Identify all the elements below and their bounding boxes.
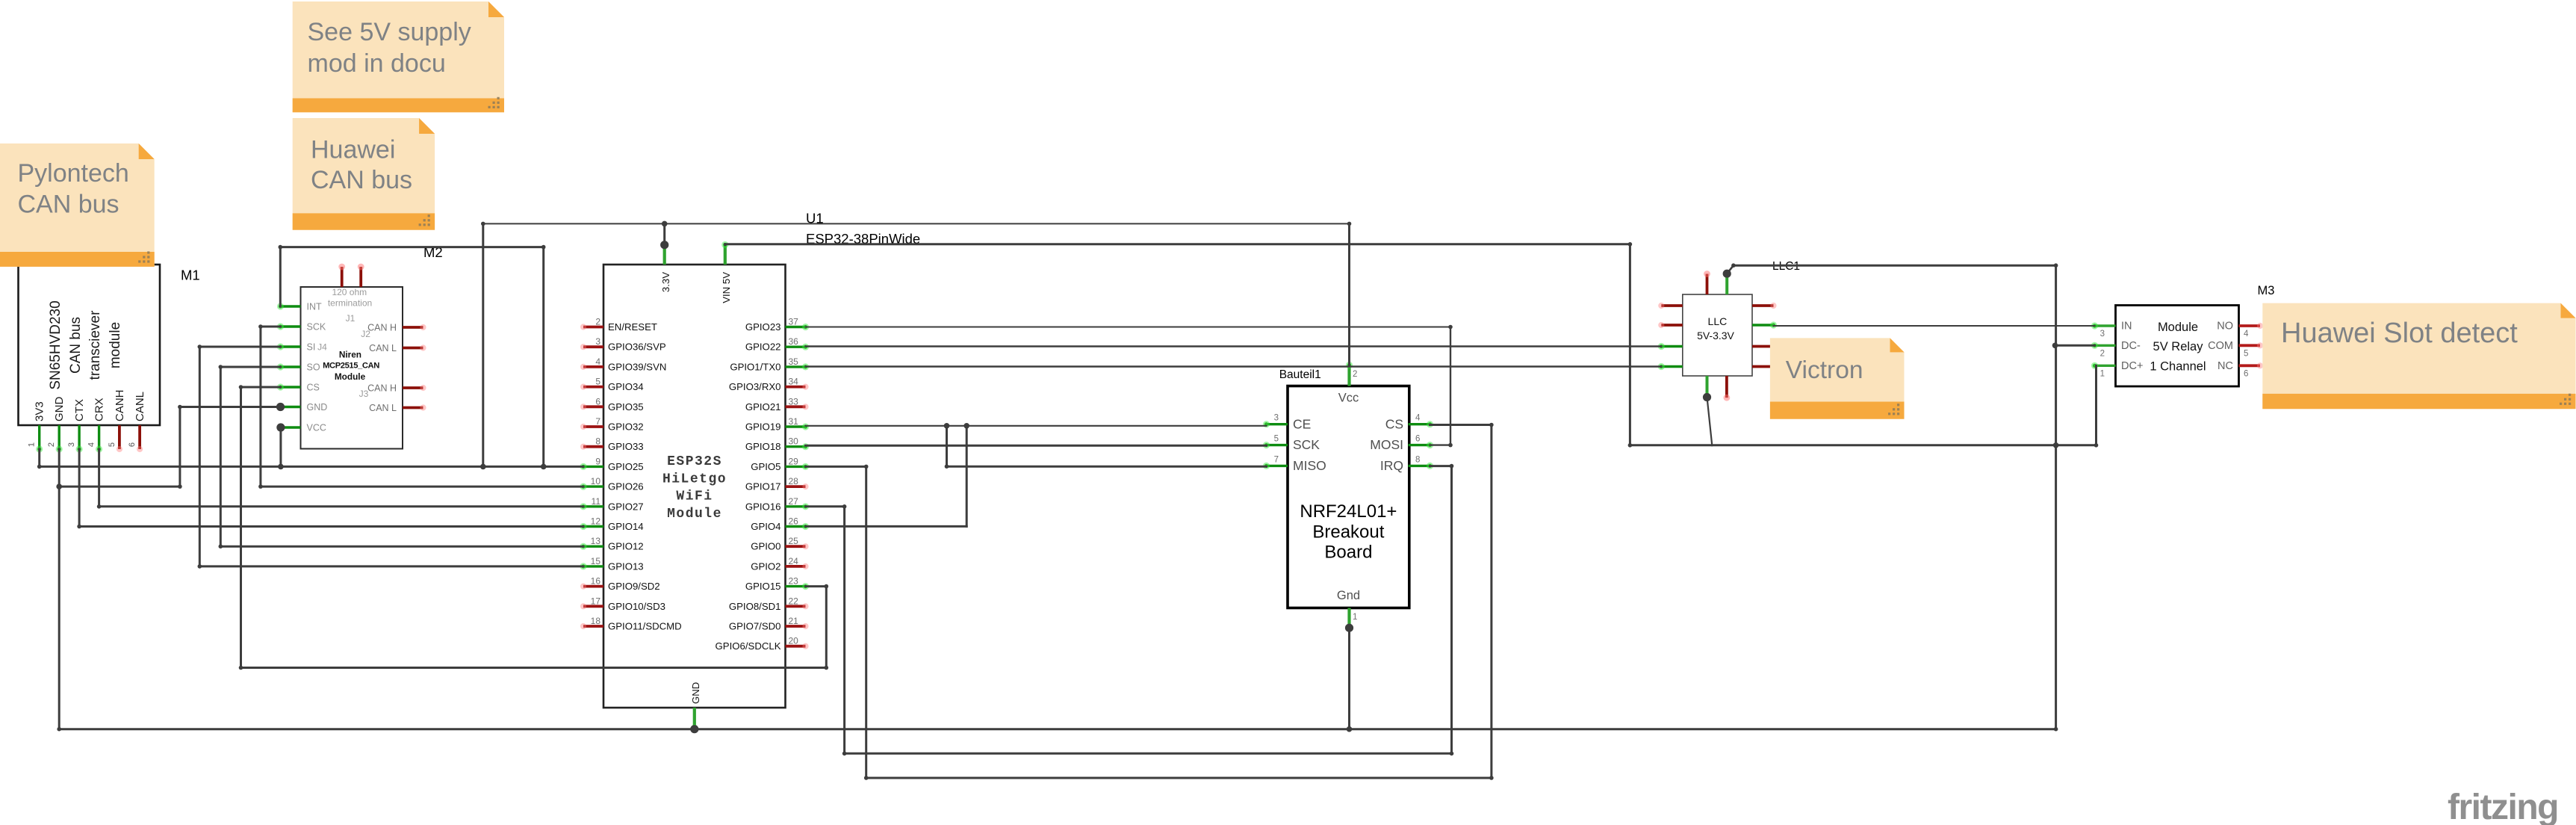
svg-text:Vcc: Vcc	[1338, 392, 1359, 405]
svg-text:MOSI: MOSI	[1370, 437, 1403, 452]
svg-text:GPIO25: GPIO25	[608, 461, 644, 472]
svg-text:NRF24L01+: NRF24L01+	[1300, 501, 1397, 522]
svg-text:CAN bus: CAN bus	[18, 191, 120, 219]
svg-text:3: 3	[595, 336, 600, 347]
svg-text:21: 21	[789, 616, 799, 626]
svg-text:12: 12	[591, 516, 601, 527]
svg-text:VIN 5V: VIN 5V	[721, 272, 732, 303]
svg-text:GPIO19: GPIO19	[745, 421, 781, 433]
svg-text:8: 8	[595, 436, 600, 447]
svg-text:COM: COM	[2208, 340, 2233, 352]
svg-text:GPIO34: GPIO34	[608, 381, 644, 392]
svg-text:GPIO26: GPIO26	[608, 481, 644, 492]
svg-text:1: 1	[1353, 613, 1357, 622]
svg-text:CANH: CANH	[114, 389, 126, 421]
svg-text:20: 20	[789, 636, 799, 646]
svg-text:4: 4	[2244, 330, 2249, 339]
svg-text:5V Relay: 5V Relay	[2153, 340, 2204, 353]
svg-text:Module: Module	[335, 371, 366, 382]
svg-text:SCK: SCK	[1293, 437, 1320, 452]
svg-text:18: 18	[591, 616, 601, 626]
svg-text:10: 10	[591, 476, 601, 486]
svg-text:6: 6	[1415, 435, 1420, 444]
svg-text:SI: SI	[307, 342, 316, 353]
svg-text:DC+: DC+	[2121, 360, 2143, 372]
svg-text:J1: J1	[346, 313, 356, 324]
svg-text:CAN H: CAN H	[367, 383, 397, 394]
svg-text:4: 4	[87, 442, 96, 447]
svg-text:SN65HVD230: SN65HVD230	[48, 300, 63, 389]
svg-text:23: 23	[789, 576, 799, 587]
svg-text:GPIO7/SD0: GPIO7/SD0	[729, 621, 781, 632]
svg-text:GPIO1/TX0: GPIO1/TX0	[730, 361, 780, 372]
svg-text:35: 35	[789, 356, 799, 367]
svg-text:MCP2515_CAN: MCP2515_CAN	[323, 362, 379, 371]
svg-text:HiLetgo: HiLetgo	[662, 472, 727, 486]
svg-text:GPIO3/RX0: GPIO3/RX0	[729, 381, 781, 392]
svg-text:CANL: CANL	[134, 392, 146, 421]
svg-text:GPIO15: GPIO15	[745, 581, 781, 592]
svg-text:GPIO13: GPIO13	[608, 560, 644, 572]
svg-text:GND: GND	[307, 402, 328, 412]
svg-text:3.3V: 3.3V	[660, 272, 671, 292]
svg-text:J3: J3	[359, 389, 369, 399]
svg-text:NC: NC	[2217, 360, 2233, 372]
svg-text:Module: Module	[667, 507, 722, 522]
svg-text:GPIO14: GPIO14	[608, 521, 644, 532]
svg-text:SO: SO	[307, 362, 320, 373]
svg-text:25: 25	[789, 536, 799, 546]
svg-text:22: 22	[789, 596, 799, 606]
svg-text:GPIO12: GPIO12	[608, 541, 644, 552]
svg-text:DC-: DC-	[2121, 340, 2141, 352]
svg-text:11: 11	[592, 496, 601, 507]
svg-text:GPIO18: GPIO18	[745, 441, 781, 452]
svg-text:24: 24	[789, 556, 799, 566]
svg-text:GPIO0: GPIO0	[751, 541, 780, 552]
svg-text:2: 2	[1353, 370, 1357, 379]
svg-text:GND: GND	[53, 397, 66, 422]
svg-text:4: 4	[595, 356, 600, 367]
svg-text:Niren: Niren	[339, 350, 361, 360]
svg-text:transciever: transciever	[87, 310, 103, 380]
svg-text:INT: INT	[307, 302, 323, 312]
svg-text:EN/RESET: EN/RESET	[608, 321, 657, 333]
svg-text:5V-3.3V: 5V-3.3V	[1697, 330, 1734, 342]
svg-text:29: 29	[789, 456, 799, 466]
svg-text:J2: J2	[361, 329, 370, 339]
svg-text:8: 8	[1415, 455, 1420, 464]
svg-text:GND: GND	[690, 682, 701, 704]
svg-text:GPIO21: GPIO21	[745, 401, 781, 412]
svg-text:M1: M1	[181, 268, 200, 283]
svg-text:3: 3	[2100, 330, 2105, 339]
svg-text:GPIO36/SVP: GPIO36/SVP	[608, 342, 666, 353]
svg-text:33: 33	[789, 396, 799, 407]
svg-text:GPIO23: GPIO23	[745, 321, 781, 333]
svg-text:ESP32S: ESP32S	[667, 454, 722, 469]
svg-text:Module: Module	[2158, 321, 2198, 334]
svg-text:module: module	[108, 322, 123, 368]
svg-text:GPIO11/SDCMD: GPIO11/SDCMD	[608, 621, 682, 632]
svg-text:GPIO27: GPIO27	[608, 501, 644, 512]
svg-text:CS: CS	[1385, 416, 1403, 431]
svg-text:26: 26	[789, 516, 799, 527]
svg-text:GPIO4: GPIO4	[751, 521, 780, 532]
svg-text:28: 28	[789, 476, 799, 486]
svg-text:IRQ: IRQ	[1380, 458, 1403, 473]
svg-text:GPIO16: GPIO16	[745, 501, 781, 512]
svg-text:CAN L: CAN L	[369, 343, 397, 353]
svg-text:31: 31	[789, 416, 799, 427]
svg-text:CAN bus: CAN bus	[311, 166, 412, 194]
svg-text:6: 6	[2244, 369, 2248, 378]
svg-text:WiFi: WiFi	[676, 489, 713, 504]
svg-text:16: 16	[591, 576, 601, 587]
svg-text:3V3: 3V3	[34, 401, 46, 421]
svg-text:1: 1	[2100, 369, 2105, 378]
svg-text:GPIO17: GPIO17	[745, 481, 781, 492]
svg-text:GPIO22: GPIO22	[745, 342, 781, 353]
svg-text:1 Channel: 1 Channel	[2150, 360, 2206, 374]
svg-text:GPIO2: GPIO2	[751, 560, 780, 572]
svg-text:9: 9	[595, 456, 600, 466]
svg-text:GPIO9/SD2: GPIO9/SD2	[608, 581, 660, 592]
svg-text:120 ohm: 120 ohm	[332, 287, 367, 297]
svg-text:2: 2	[595, 317, 600, 327]
svg-text:34: 34	[789, 377, 799, 387]
svg-text:GPIO10/SD3: GPIO10/SD3	[608, 601, 665, 612]
svg-text:37: 37	[789, 317, 799, 327]
svg-text:Huawei Slot detect: Huawei Slot detect	[2281, 318, 2518, 349]
svg-text:IN: IN	[2121, 321, 2132, 333]
svg-text:7: 7	[595, 416, 600, 427]
svg-text:3: 3	[67, 442, 76, 447]
svg-text:CS: CS	[307, 383, 320, 393]
svg-text:6: 6	[595, 396, 600, 407]
svg-text:Bauteil1: Bauteil1	[1279, 368, 1321, 381]
svg-text:27: 27	[789, 496, 799, 507]
svg-text:5: 5	[595, 377, 600, 387]
svg-text:GPIO5: GPIO5	[751, 461, 780, 472]
svg-text:MISO: MISO	[1293, 458, 1326, 473]
svg-text:CRX: CRX	[93, 398, 106, 421]
svg-text:GPIO6/SDCLK: GPIO6/SDCLK	[716, 640, 781, 652]
svg-text:GPIO32: GPIO32	[608, 421, 644, 433]
svg-text:5: 5	[1274, 435, 1279, 444]
svg-text:30: 30	[789, 436, 799, 447]
svg-text:GPIO39/SVN: GPIO39/SVN	[608, 361, 666, 372]
svg-text:Pylontech: Pylontech	[18, 159, 129, 188]
svg-text:Board: Board	[1324, 543, 1372, 563]
svg-text:fritzing: fritzing	[2448, 788, 2558, 825]
svg-text:J4: J4	[317, 342, 327, 353]
svg-text:17: 17	[591, 596, 601, 606]
svg-text:4: 4	[1415, 414, 1421, 423]
svg-text:Breakout: Breakout	[1312, 522, 1384, 542]
svg-text:1: 1	[28, 442, 37, 447]
svg-text:M3: M3	[2258, 284, 2275, 297]
svg-text:See 5V supply: See 5V supply	[308, 18, 471, 46]
svg-text:2: 2	[2100, 349, 2105, 358]
svg-text:SCK: SCK	[307, 322, 326, 333]
svg-text:GPIO33: GPIO33	[608, 441, 644, 452]
svg-text:GPIO35: GPIO35	[608, 401, 644, 412]
svg-text:GPIO8/SD1: GPIO8/SD1	[729, 601, 781, 612]
svg-text:5: 5	[2244, 349, 2248, 358]
svg-text:VCC: VCC	[307, 423, 326, 433]
svg-text:LLC: LLC	[1708, 315, 1728, 327]
svg-text:2: 2	[47, 442, 56, 447]
svg-text:CAN H: CAN H	[367, 323, 397, 333]
svg-text:7: 7	[1274, 455, 1279, 464]
svg-text:3: 3	[1274, 414, 1279, 423]
svg-text:termination: termination	[328, 298, 372, 309]
svg-text:CE: CE	[1293, 416, 1311, 431]
svg-text:6: 6	[128, 442, 137, 447]
svg-text:CAN L: CAN L	[369, 403, 397, 413]
svg-text:36: 36	[789, 336, 799, 347]
svg-text:CAN bus: CAN bus	[68, 317, 84, 374]
svg-text:Gnd: Gnd	[1337, 589, 1360, 602]
svg-text:5: 5	[108, 442, 117, 447]
svg-text:15: 15	[591, 556, 601, 566]
svg-text:Huawei: Huawei	[311, 136, 395, 164]
svg-text:13: 13	[591, 536, 601, 546]
svg-text:Victron: Victron	[1786, 356, 1863, 384]
svg-text:mod in docu: mod in docu	[308, 49, 446, 78]
svg-text:NO: NO	[2217, 321, 2233, 333]
svg-text:CTX: CTX	[73, 399, 86, 421]
